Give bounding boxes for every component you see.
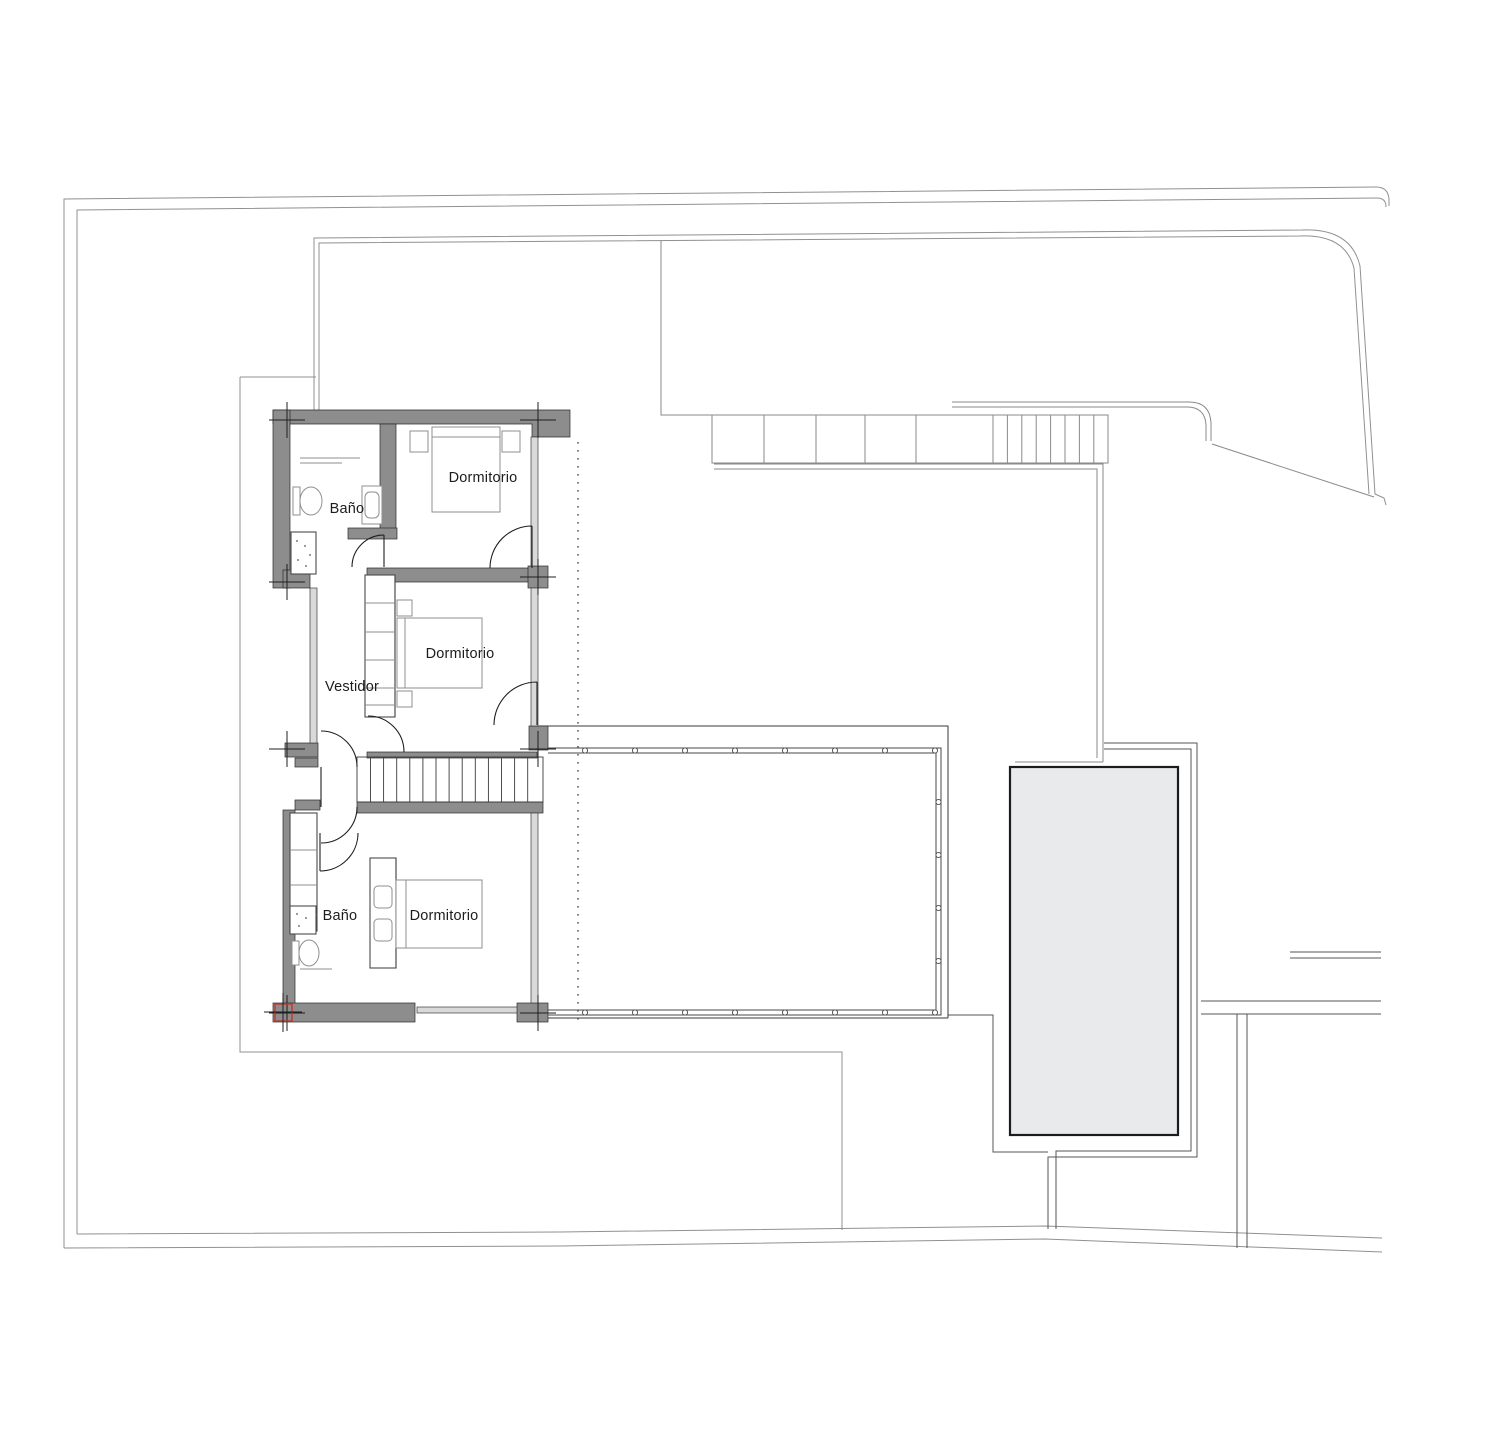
floor-plan-page: DormitorioBañoDormitorioVestidorBañoDorm… xyxy=(0,0,1512,1454)
shower-tray xyxy=(291,532,316,574)
ground-floor-outline xyxy=(661,241,1374,762)
exterior-stairs xyxy=(993,415,1094,463)
survey-marker xyxy=(264,993,302,1032)
terrace xyxy=(530,726,948,1018)
floor-plan-svg: DormitorioBañoDormitorioVestidorBañoDorm… xyxy=(0,0,1512,1454)
swimming-pool xyxy=(1010,767,1178,1135)
room-label-dormitorio-top: Dormitorio xyxy=(449,470,518,486)
ramp-edge xyxy=(1212,444,1374,497)
pergola-band xyxy=(712,415,1108,463)
interior-stairs xyxy=(357,757,543,802)
room-label-bano-top: Baño xyxy=(330,501,365,517)
wardrobe-middle xyxy=(365,575,395,717)
furniture xyxy=(290,427,520,969)
inner-site-boundary xyxy=(240,230,1386,1230)
toilet-icon xyxy=(299,940,319,966)
room-label-dormitorio-middle: Dormitorio xyxy=(426,646,495,662)
toilet-icon xyxy=(300,487,322,515)
washbasin xyxy=(290,906,316,934)
room-label-vestidor: Vestidor xyxy=(325,679,379,695)
railing-posts xyxy=(582,748,941,1015)
sink-icon xyxy=(365,492,379,518)
plot-boundary xyxy=(64,187,1389,1252)
pool-area xyxy=(948,743,1381,1248)
room-label-dormitorio-bottom: Dormitorio xyxy=(410,908,479,924)
room-label-bano-bottom: Baño xyxy=(323,908,358,924)
